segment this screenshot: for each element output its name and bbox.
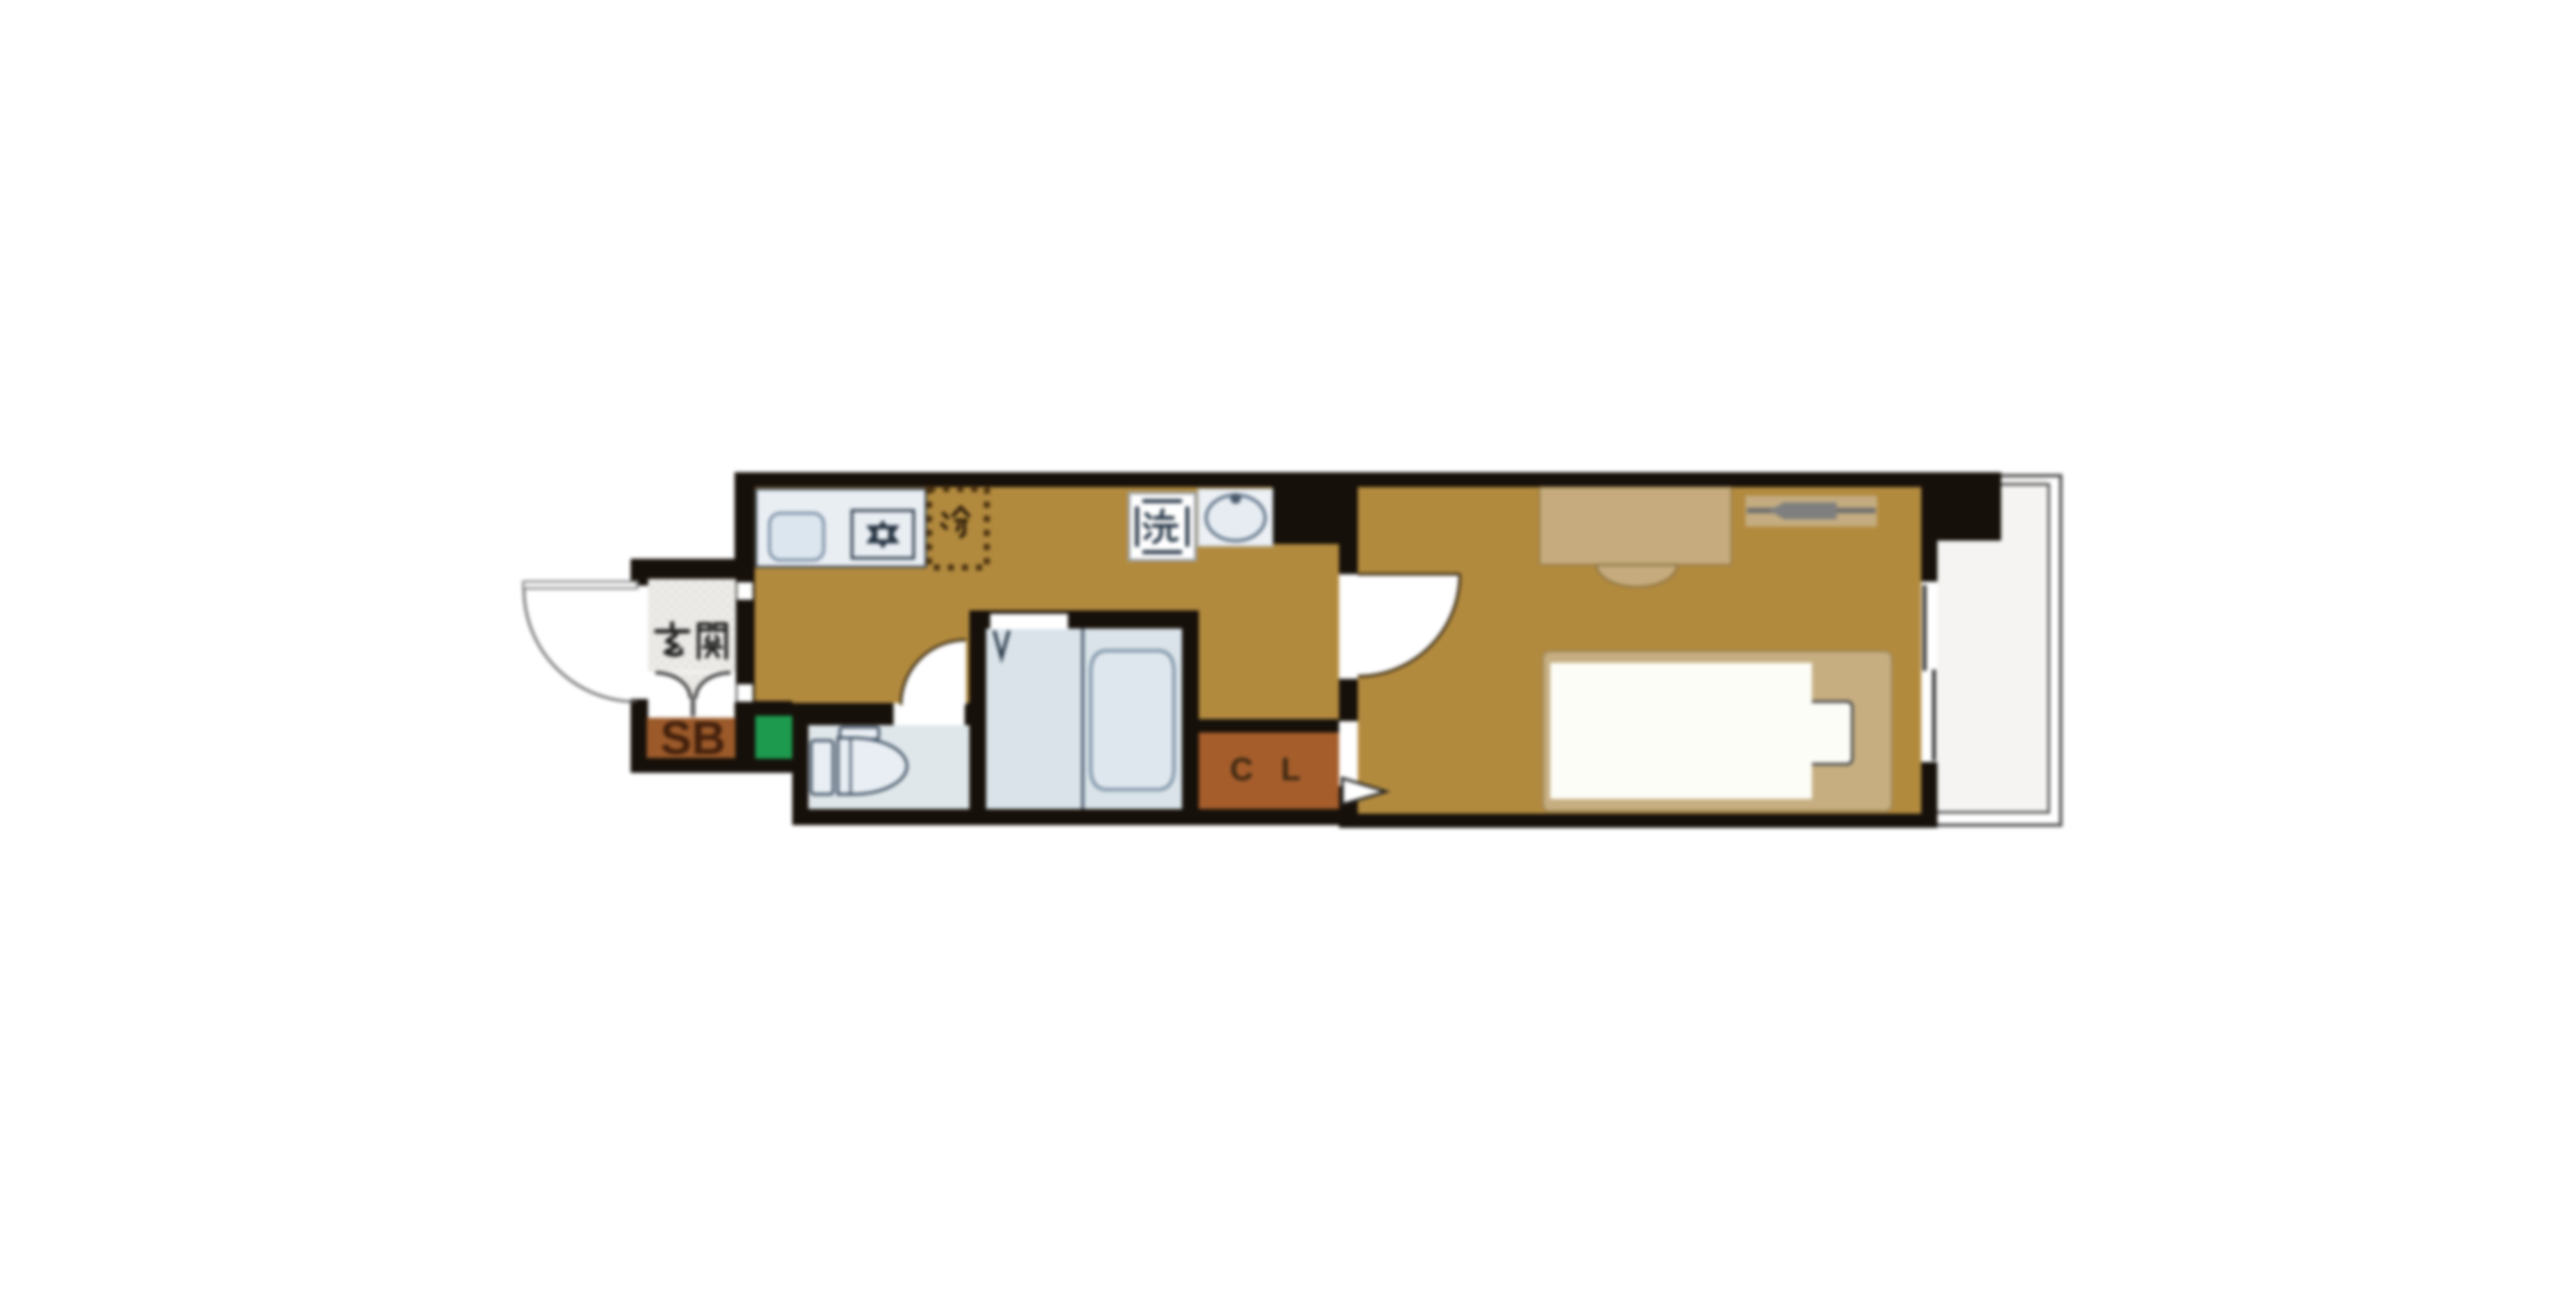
svg-text:C L: C L [1230, 752, 1309, 788]
svg-text:SB: SB [660, 712, 725, 764]
